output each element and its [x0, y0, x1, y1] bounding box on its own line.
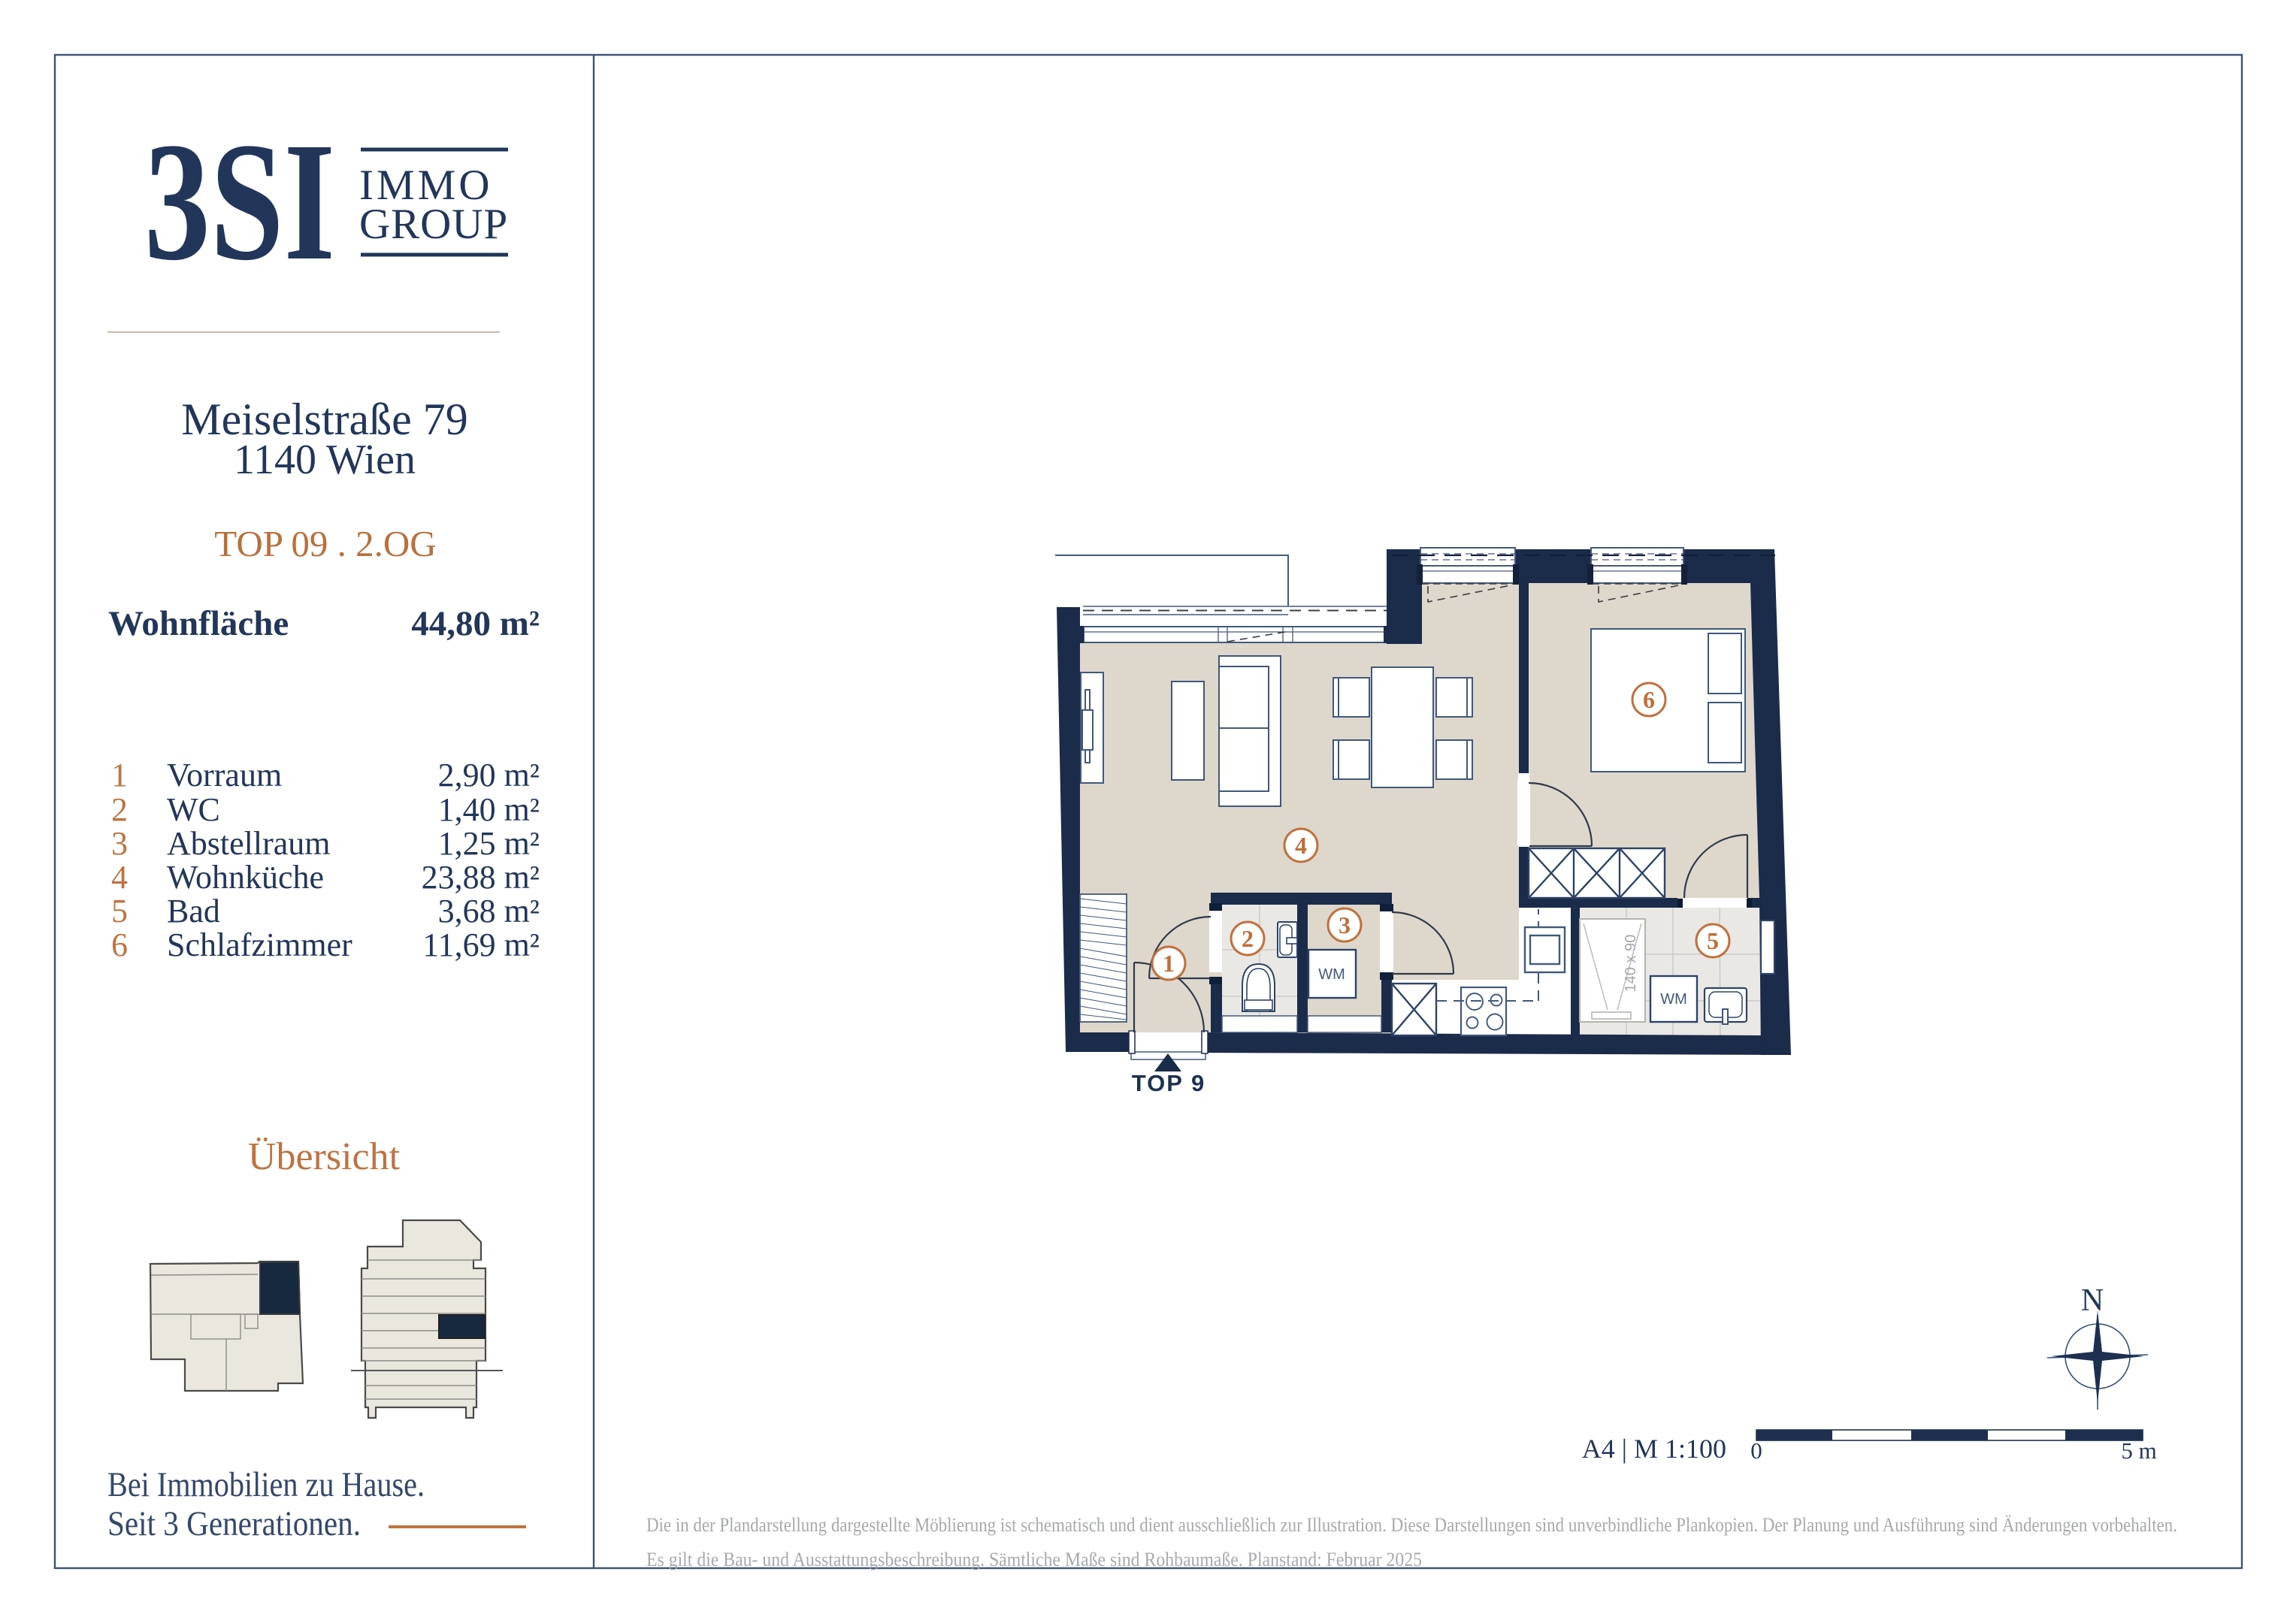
svg-text:140 x 90: 140 x 90 — [1623, 935, 1639, 993]
svg-text:1: 1 — [111, 757, 128, 793]
svg-text:1,40 m²: 1,40 m² — [438, 791, 540, 828]
svg-text:0: 0 — [1750, 1437, 1762, 1464]
svg-text:5: 5 — [111, 893, 128, 929]
svg-text:Wohnküche: Wohnküche — [167, 859, 324, 896]
svg-text:4: 4 — [1295, 832, 1307, 859]
svg-text:Vorraum: Vorraum — [167, 757, 282, 793]
svg-text:3SI: 3SI — [144, 107, 335, 295]
svg-text:Schlafzimmer: Schlafzimmer — [167, 926, 352, 963]
svg-text:2: 2 — [1242, 925, 1254, 952]
svg-text:44,80 m²: 44,80 m² — [411, 604, 540, 643]
svg-text:N: N — [2081, 1283, 2104, 1318]
svg-text:Bad: Bad — [167, 893, 220, 929]
svg-text:6: 6 — [1643, 686, 1655, 713]
svg-text:3,68 m²: 3,68 m² — [438, 893, 540, 929]
svg-text:WC: WC — [167, 791, 220, 828]
svg-text:Wohnfläche: Wohnfläche — [108, 604, 289, 643]
svg-text:WM: WM — [1660, 991, 1687, 1008]
svg-text:5: 5 — [1707, 927, 1719, 954]
svg-text:3: 3 — [111, 825, 128, 862]
svg-text:6: 6 — [111, 926, 128, 963]
svg-text:TOP 9: TOP 9 — [1132, 1070, 1205, 1096]
svg-text:Abstellraum: Abstellraum — [167, 825, 331, 862]
svg-text:2: 2 — [111, 791, 128, 828]
svg-text:2,90 m²: 2,90 m² — [438, 757, 540, 793]
svg-text:Die in der Plandarstellung dar: Die in der Plandarstellung dargestellte … — [646, 1514, 2177, 1536]
svg-text:Bei Immobilien zu Hause.: Bei Immobilien zu Hause. — [107, 1465, 425, 1504]
svg-text:Seit 3 Generationen.: Seit 3 Generationen. — [107, 1504, 361, 1543]
svg-text:5 m: 5 m — [2121, 1437, 2156, 1464]
svg-text:Es gilt die Bau- und Ausstattu: Es gilt die Bau- und Ausstattungsbeschre… — [646, 1549, 1422, 1570]
svg-text:A4 | M 1:100: A4 | M 1:100 — [1582, 1434, 1726, 1464]
svg-text:23,88 m²: 23,88 m² — [422, 859, 540, 896]
svg-text:3: 3 — [1339, 911, 1351, 938]
svg-text:WM: WM — [1318, 966, 1345, 983]
svg-text:11,69 m²: 11,69 m² — [422, 926, 540, 963]
svg-text:1,25 m²: 1,25 m² — [438, 825, 540, 862]
svg-text:1: 1 — [1163, 950, 1175, 977]
svg-text:Übersicht: Übersicht — [248, 1135, 401, 1178]
svg-text:1140 Wien: 1140 Wien — [234, 437, 416, 483]
svg-text:GROUP: GROUP — [359, 201, 508, 248]
svg-text:4: 4 — [111, 859, 128, 896]
svg-text:TOP 09 . 2.OG: TOP 09 . 2.OG — [214, 523, 436, 564]
